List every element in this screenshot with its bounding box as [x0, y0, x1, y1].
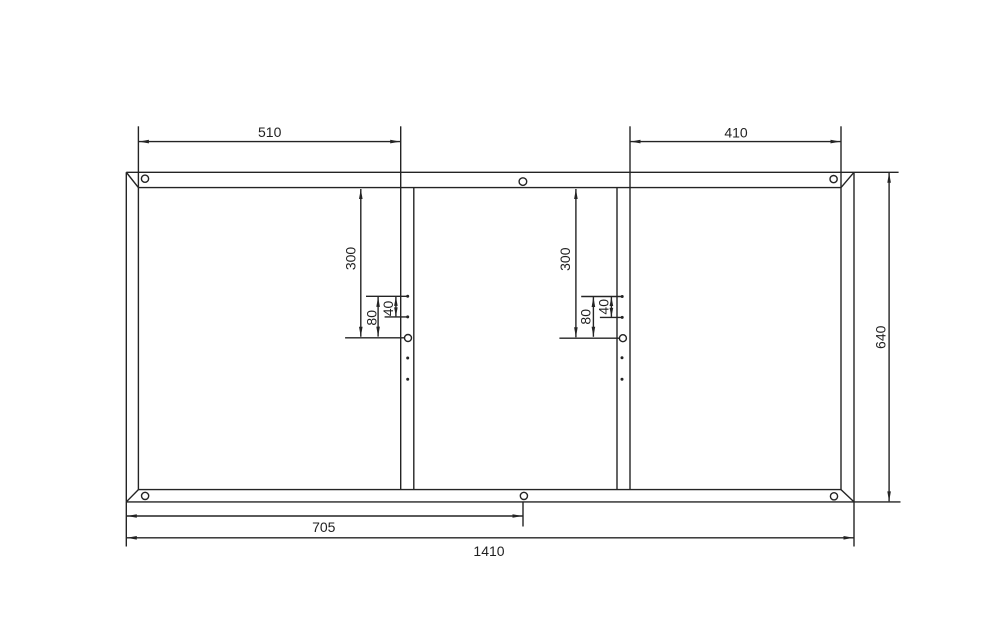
svg-text:300: 300 [343, 247, 359, 271]
svg-text:1410: 1410 [473, 543, 504, 559]
svg-text:80: 80 [363, 310, 379, 326]
svg-text:640: 640 [873, 325, 889, 349]
svg-text:410: 410 [724, 124, 748, 140]
svg-text:300: 300 [557, 247, 573, 271]
svg-text:40: 40 [380, 301, 396, 317]
svg-text:705: 705 [312, 519, 336, 535]
svg-text:510: 510 [258, 124, 282, 140]
svg-text:40: 40 [596, 299, 612, 315]
svg-text:80: 80 [578, 309, 594, 325]
